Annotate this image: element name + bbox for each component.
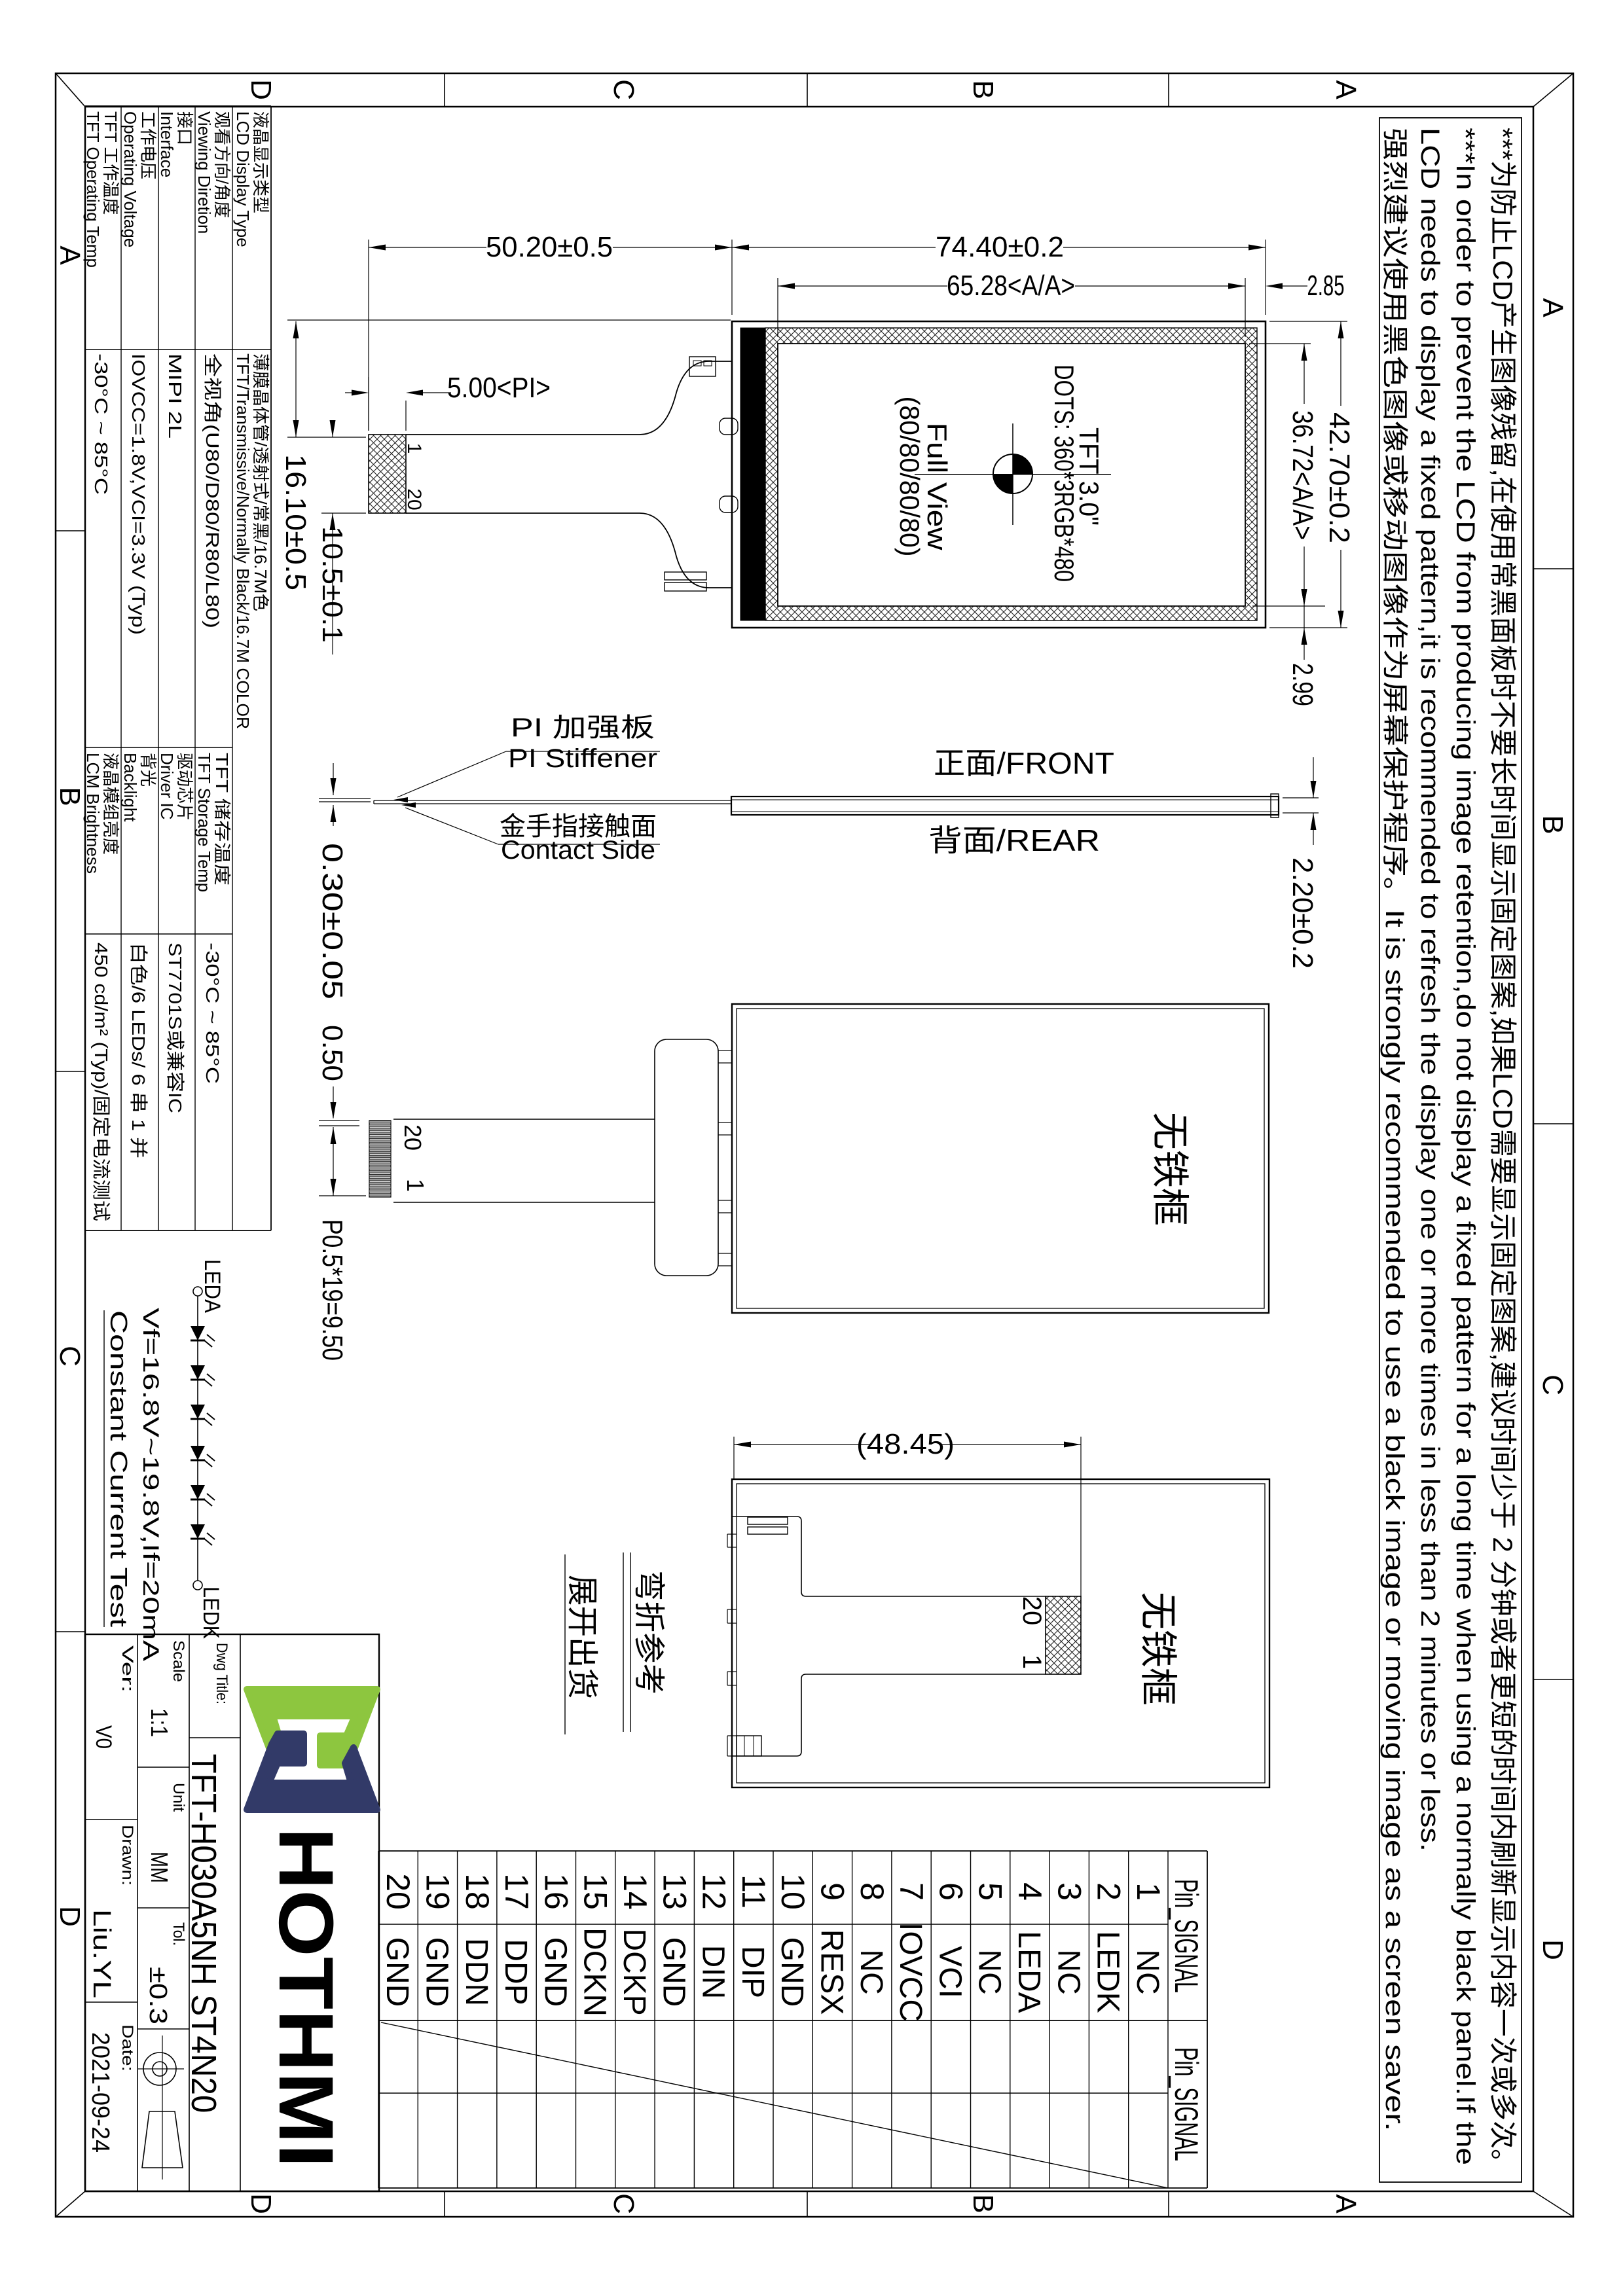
svg-text:16: 16 bbox=[538, 1873, 574, 1910]
svg-text:TFT 工作温度: TFT 工作温度 bbox=[101, 111, 120, 215]
svg-text:±0.3: ±0.3 bbox=[144, 1967, 172, 2024]
svg-text:20: 20 bbox=[399, 1124, 426, 1151]
svg-text:(48.45): (48.45) bbox=[856, 1428, 955, 1460]
svg-text:A: A bbox=[1537, 298, 1569, 317]
svg-text:0.30±0.05: 0.30±0.05 bbox=[316, 843, 348, 999]
svg-text:MIPI 2L: MIPI 2L bbox=[165, 353, 185, 439]
svg-text:9: 9 bbox=[814, 1882, 850, 1901]
svg-text:GND: GND bbox=[380, 1937, 414, 2007]
svg-text:D: D bbox=[1537, 1939, 1569, 1960]
svg-text:C: C bbox=[54, 1346, 86, 1367]
svg-text:LEDK: LEDK bbox=[1091, 1931, 1125, 2013]
svg-text:Vf=16.8V~19.8V,If=20mA: Vf=16.8V~19.8V,If=20mA bbox=[138, 1308, 163, 1661]
svg-text:36.72<A/A>: 36.72<A/A> bbox=[1286, 410, 1319, 540]
svg-text:B: B bbox=[967, 2194, 999, 2213]
svg-text:白色/6 LEDs/ 6 串 1 并: 白色/6 LEDs/ 6 串 1 并 bbox=[128, 942, 149, 1158]
svg-text:Constant Current Test: Constant Current Test bbox=[105, 1310, 132, 1627]
svg-text:展开出货: 展开出货 bbox=[564, 1575, 599, 1699]
svg-text:NC: NC bbox=[972, 1949, 1007, 1994]
svg-text:13: 13 bbox=[656, 1873, 693, 1910]
svg-text:65.28<A/A>: 65.28<A/A> bbox=[947, 270, 1075, 302]
svg-text:450 cd/m² (Typ)/固定电流测试: 450 cd/m² (Typ)/固定电流测试 bbox=[91, 942, 111, 1221]
svg-text:工作电压: 工作电压 bbox=[138, 111, 158, 179]
svg-text:3: 3 bbox=[1051, 1882, 1087, 1901]
svg-text:强烈建议使用黑色图像或移动图像作为屏幕保护程序。It is: 强烈建议使用黑色图像或移动图像作为屏幕保护程序。It is strongly r… bbox=[1380, 128, 1409, 2131]
svg-text:Tol.: Tol. bbox=[170, 1922, 187, 1946]
svg-text:B: B bbox=[967, 80, 999, 99]
svg-text:液晶模组亮度: 液晶模组亮度 bbox=[101, 753, 120, 855]
svg-text:NC: NC bbox=[854, 1949, 888, 1994]
svg-text:VCI: VCI bbox=[932, 1946, 967, 1998]
svg-text:P0.5*19=9.50: P0.5*19=9.50 bbox=[316, 1219, 348, 1361]
svg-text:2.85: 2.85 bbox=[1307, 270, 1345, 302]
svg-text:C: C bbox=[1537, 1374, 1569, 1395]
svg-text:Backlight: Backlight bbox=[120, 753, 140, 822]
svg-text:1: 1 bbox=[403, 443, 425, 454]
svg-text:Operating Voltage: Operating Voltage bbox=[120, 111, 140, 247]
svg-text:B: B bbox=[1537, 815, 1569, 834]
svg-text:LEDA: LEDA bbox=[1012, 1931, 1046, 2013]
svg-text:15: 15 bbox=[577, 1873, 614, 1910]
svg-text:DIN: DIN bbox=[696, 1945, 731, 2000]
svg-text:RESX: RESX bbox=[814, 1929, 848, 2015]
svg-text:14: 14 bbox=[617, 1873, 653, 1910]
svg-text:Pin_SIGNAL: Pin_SIGNAL bbox=[1168, 2047, 1205, 2161]
svg-text:全视角(U80/D80/R80/L80): 全视角(U80/D80/R80/L80) bbox=[202, 353, 223, 628]
svg-text:观看方向/角度: 观看方向/角度 bbox=[212, 111, 232, 218]
svg-text:GND: GND bbox=[419, 1937, 454, 2007]
svg-text:5.00<PI>: 5.00<PI> bbox=[447, 372, 551, 404]
svg-text:D: D bbox=[245, 2193, 277, 2214]
svg-text:10: 10 bbox=[775, 1873, 811, 1910]
svg-text:20: 20 bbox=[403, 488, 425, 510]
svg-text:ST7701S或兼容IC: ST7701S或兼容IC bbox=[165, 942, 185, 1113]
svg-text:***为防止LCD产生图像残留,在使用常黑面板时不要长时间显: ***为防止LCD产生图像残留,在使用常黑面板时不要长时间显示固定图案,如果LC… bbox=[1487, 128, 1518, 2177]
svg-text:LEDA: LEDA bbox=[200, 1259, 225, 1313]
svg-text:C: C bbox=[608, 79, 640, 100]
svg-text:1: 1 bbox=[1017, 1655, 1046, 1669]
svg-text:Ver:: Ver: bbox=[119, 1645, 136, 1693]
svg-text:74.40±0.2: 74.40±0.2 bbox=[936, 231, 1064, 263]
svg-text:D: D bbox=[245, 79, 277, 100]
svg-text:IOVCC: IOVCC bbox=[893, 1922, 928, 2022]
svg-text:Full View: Full View bbox=[922, 423, 953, 551]
svg-text:LCM Brightness: LCM Brightness bbox=[83, 753, 103, 874]
svg-text:A: A bbox=[1330, 2194, 1362, 2214]
svg-text:GND: GND bbox=[656, 1937, 691, 2007]
svg-text:Liu.YL: Liu.YL bbox=[88, 1909, 115, 1998]
svg-text:LCD needs to display a fixed p: LCD needs to display a fixed pattern,it … bbox=[1415, 128, 1444, 1852]
svg-text:DCKN: DCKN bbox=[577, 1928, 612, 2017]
svg-text:无铁框: 无铁框 bbox=[1148, 1112, 1191, 1226]
svg-text:B: B bbox=[54, 787, 86, 806]
svg-text:液晶显示类型: 液晶显示类型 bbox=[251, 111, 270, 213]
svg-text:(80/80/80/80): (80/80/80/80) bbox=[894, 397, 925, 557]
svg-text:DIP: DIP bbox=[735, 1946, 770, 1998]
svg-text:19: 19 bbox=[419, 1873, 456, 1910]
svg-text:GND: GND bbox=[538, 1937, 572, 2007]
svg-text:NC: NC bbox=[1130, 1949, 1165, 1994]
svg-text:接口: 接口 bbox=[175, 111, 194, 145]
svg-text:17: 17 bbox=[498, 1873, 535, 1910]
svg-text:50.20±0.5: 50.20±0.5 bbox=[486, 231, 613, 263]
svg-text:背面/REAR: 背面/REAR bbox=[928, 823, 1100, 857]
svg-text:20: 20 bbox=[380, 1873, 416, 1910]
svg-text:LCD Display Type: LCD Display Type bbox=[233, 111, 253, 247]
svg-text:5: 5 bbox=[972, 1882, 1009, 1901]
svg-text:1: 1 bbox=[1130, 1882, 1167, 1901]
svg-text:12: 12 bbox=[696, 1873, 733, 1910]
svg-text:Viewing Diretion: Viewing Diretion bbox=[194, 111, 214, 234]
svg-text:IOVCC=1.8V,VCI=3.3V (Typ): IOVCC=1.8V,VCI=3.3V (Typ) bbox=[128, 353, 149, 635]
svg-text:TFT-H030A5NH ST4N20: TFT-H030A5NH ST4N20 bbox=[184, 1754, 223, 2113]
svg-text:11: 11 bbox=[735, 1874, 772, 1909]
svg-text:背光: 背光 bbox=[138, 753, 158, 787]
svg-text:DCKP: DCKP bbox=[617, 1928, 651, 2015]
svg-text:正面/FRONT: 正面/FRONT bbox=[934, 746, 1114, 780]
svg-text:LEDK: LEDK bbox=[198, 1587, 223, 1639]
svg-text:TFT 储存温度: TFT 储存温度 bbox=[212, 753, 232, 886]
svg-text:GND: GND bbox=[775, 1937, 809, 2007]
svg-text:Pin_SIGNAL: Pin_SIGNAL bbox=[1168, 1879, 1205, 1993]
svg-text:DDN: DDN bbox=[459, 1938, 494, 2006]
svg-text:0.50: 0.50 bbox=[316, 1025, 348, 1081]
svg-text:Unit: Unit bbox=[170, 1783, 187, 1812]
svg-text:2021-09-24: 2021-09-24 bbox=[86, 2032, 114, 2153]
svg-text:TFT Storage Temp: TFT Storage Temp bbox=[194, 753, 214, 892]
svg-text:4: 4 bbox=[1012, 1882, 1048, 1901]
svg-text:20: 20 bbox=[1017, 1596, 1046, 1626]
svg-text:无铁框: 无铁框 bbox=[1137, 1592, 1179, 1706]
svg-text:8: 8 bbox=[854, 1882, 890, 1901]
svg-text:6: 6 bbox=[932, 1882, 969, 1901]
svg-text:Scale: Scale bbox=[170, 1640, 187, 1682]
svg-text:2.20±0.2: 2.20±0.2 bbox=[1286, 857, 1319, 969]
svg-text:10.5±0.1: 10.5±0.1 bbox=[316, 526, 348, 643]
svg-text:DOTS: 360*3RGB*480: DOTS: 360*3RGB*480 bbox=[1049, 365, 1080, 582]
svg-text:D: D bbox=[54, 1906, 86, 1927]
svg-text:MM: MM bbox=[146, 1852, 173, 1883]
svg-text:Contact Side: Contact Side bbox=[501, 836, 655, 865]
svg-text:A: A bbox=[1330, 80, 1362, 99]
svg-text:PI Stiffener: PI Stiffener bbox=[508, 744, 657, 773]
svg-text:DDP: DDP bbox=[498, 1939, 533, 2005]
svg-text:-30°C ~ 85°C: -30°C ~ 85°C bbox=[202, 942, 223, 1084]
svg-text:18: 18 bbox=[459, 1873, 496, 1910]
svg-text:Drawn:: Drawn: bbox=[119, 1825, 136, 1886]
svg-text:TFT/Transmissive/Normally Blac: TFT/Transmissive/Normally Black/16.7M CO… bbox=[233, 353, 253, 729]
svg-text:PI 加强板: PI 加强板 bbox=[511, 713, 655, 742]
svg-text:42.70±0.2: 42.70±0.2 bbox=[1323, 412, 1355, 543]
svg-text:Interface: Interface bbox=[157, 111, 177, 177]
svg-text:V0: V0 bbox=[91, 1725, 116, 1749]
svg-text:1: 1 bbox=[402, 1179, 429, 1192]
svg-text:Driver IC: Driver IC bbox=[157, 753, 177, 820]
svg-text:NC: NC bbox=[1051, 1949, 1085, 1994]
svg-text:-30°C ~ 85°C: -30°C ~ 85°C bbox=[91, 353, 111, 495]
svg-text:Date:: Date: bbox=[119, 2024, 136, 2072]
svg-text:TFT Operating Temp: TFT Operating Temp bbox=[83, 111, 103, 268]
svg-text:驱动芯片: 驱动芯片 bbox=[175, 753, 194, 821]
svg-text:2.99: 2.99 bbox=[1286, 663, 1319, 706]
svg-text:薄膜晶体管/透射式/常黑/16.7M色: 薄膜晶体管/透射式/常黑/16.7M色 bbox=[251, 353, 270, 611]
svg-text:A: A bbox=[54, 245, 86, 265]
svg-text:HOTHMI: HOTHMI bbox=[263, 1827, 349, 2168]
svg-text:1:1: 1:1 bbox=[146, 1708, 173, 1737]
svg-text:C: C bbox=[608, 2193, 640, 2214]
svg-text:16.10±0.5: 16.10±0.5 bbox=[280, 454, 312, 590]
svg-text:Dwg Title:: Dwg Title: bbox=[213, 1643, 230, 1704]
svg-text:2: 2 bbox=[1091, 1882, 1127, 1901]
svg-text:弯折参考: 弯折参考 bbox=[631, 1570, 666, 1695]
svg-text:***In order to prevent the LCD: ***In order to prevent the LCD from prod… bbox=[1451, 128, 1480, 2165]
svg-text:7: 7 bbox=[893, 1882, 930, 1901]
